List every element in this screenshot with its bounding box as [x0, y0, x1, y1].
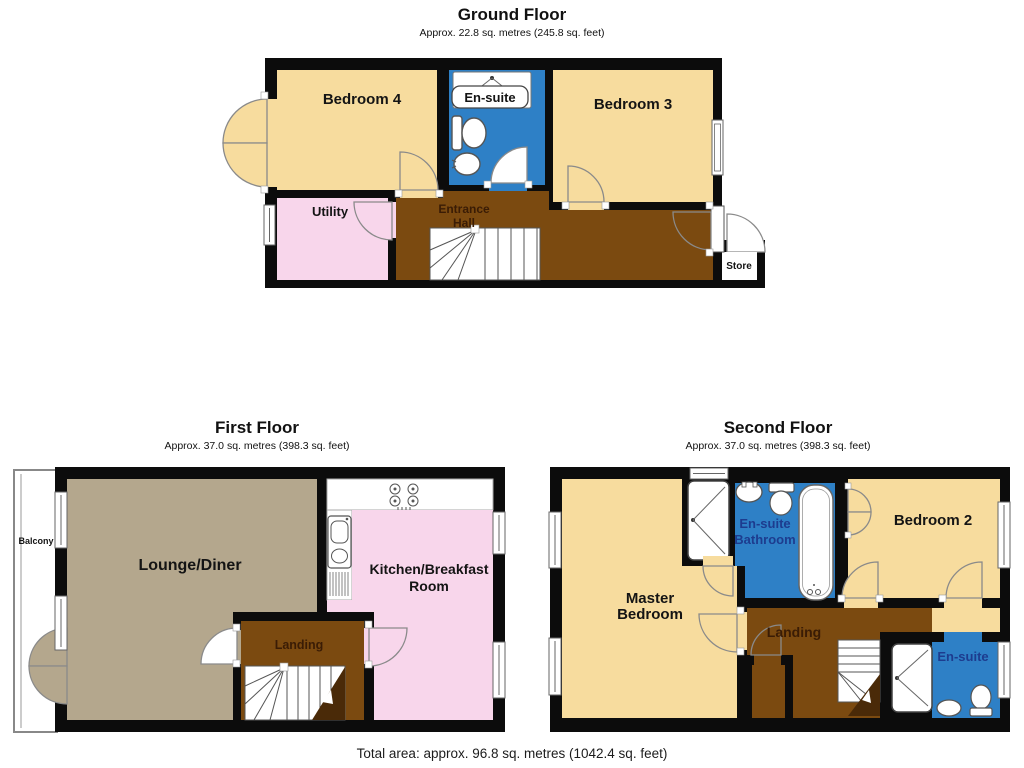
entrance-hall-label-line1: Entrance [438, 202, 490, 216]
kitchen-label-line1: Kitchen/Breakfast [369, 561, 488, 577]
window-bedroom2-right [998, 502, 1010, 568]
jamb [562, 202, 569, 209]
jamb [261, 92, 268, 99]
second-floor-plan: Master Bedroom En-suite Bathroom Bedroom… [549, 467, 1010, 732]
first-floor-plan: Lounge/Diner Kitchen/Breakfast Room Land… [14, 467, 505, 732]
toilet-icon-ground [452, 116, 486, 150]
master-bedroom-label-line1: Master [626, 590, 675, 607]
bedroom4-french-door-arc-top [223, 99, 267, 143]
jamb [706, 202, 713, 209]
jamb [737, 648, 744, 655]
ensuite-bathroom-label-line1: En-suite [739, 516, 790, 531]
drainer-icon [330, 572, 348, 596]
toilet-icon-bathroom [769, 483, 794, 515]
bathtub-icon [799, 485, 833, 600]
bedroom4-label: Bedroom 4 [323, 91, 402, 108]
jamb [395, 190, 402, 197]
toilet-icon-ensuite-second [970, 685, 992, 716]
ground-floor-plan: Bedroom 4 En-suite Bedroom 3 Utility Ent… [223, 58, 765, 288]
kitchen-sink-icon [328, 516, 351, 568]
shower-cubicle-ensuite-icon [892, 644, 932, 712]
sink-icon-ensuite-second [937, 700, 961, 716]
bedroom3-label: Bedroom 3 [594, 96, 672, 113]
window-master-left-top [549, 512, 561, 568]
jamb [838, 595, 845, 602]
balcony-label: Balcony [18, 536, 53, 546]
jamb [484, 181, 491, 188]
window-kitchen-right-top [493, 512, 505, 554]
jamb [737, 607, 744, 614]
kitchen-label-line2: Room [409, 578, 449, 594]
closet-door-gap [754, 655, 781, 665]
floorplan-page: Ground Floor Approx. 22.8 sq. metres (24… [0, 0, 1024, 768]
shower-cubicle-bathroom-icon [688, 481, 729, 560]
jamb [436, 190, 443, 197]
ensuite-ground-label: En-suite [464, 90, 515, 105]
entrance-hall-label-line2: Hall [453, 216, 475, 230]
staircase-ground [430, 225, 540, 280]
utility-label: Utility [312, 204, 349, 219]
bedroom2-label: Bedroom 2 [894, 512, 972, 529]
bedroom3-door-gap [568, 202, 604, 210]
jamb [261, 186, 268, 193]
floorplan-drawing: Bedroom 4 En-suite Bedroom 3 Utility Ent… [0, 0, 1024, 768]
sink-icon-bathroom [736, 482, 762, 502]
store-door-arc [727, 214, 765, 252]
bedroom4-french-door-arc-bottom [223, 143, 267, 187]
jamb [233, 624, 240, 631]
jamb [876, 595, 883, 602]
total-area-text: Total area: approx. 96.8 sq. metres (104… [0, 746, 1024, 761]
master-bedroom-label-line2: Bedroom [617, 606, 683, 623]
front-door-leaf [711, 206, 724, 252]
bedroom4-door-gap [400, 190, 438, 198]
jamb [845, 483, 851, 489]
jamb [602, 202, 609, 209]
store-label: Store [726, 261, 752, 272]
ensuite-route-door-gap [944, 598, 982, 608]
ensuite-second-label: En-suite [937, 649, 988, 664]
jamb [706, 249, 713, 256]
jamb [939, 595, 946, 602]
ensuite-door-gap [489, 183, 527, 191]
window-master-left-bottom [549, 638, 561, 695]
jamb [845, 532, 851, 538]
window-lounge-left-top [55, 492, 67, 548]
window-bathroom-top [690, 468, 728, 479]
jamb [233, 660, 240, 667]
ensuite-bathroom-label-line2: Bathroom [734, 532, 795, 547]
master-bathroom-door-gap [703, 556, 733, 566]
bedroom2-ensuite-passage [932, 608, 1000, 632]
master-landing-door-gap [737, 612, 747, 650]
jamb [365, 621, 372, 628]
landing-second-label: Landing [767, 624, 821, 640]
landing-first-label: Landing [275, 638, 324, 652]
window-kitchen-right-bottom [493, 642, 505, 698]
window-lounge-left-bottom [55, 596, 67, 650]
bedroom2-door-gap [844, 598, 878, 608]
ensuite-second-opening [944, 632, 982, 642]
staircase-first [245, 663, 345, 720]
window-bedroom3-right [712, 120, 723, 175]
lounge-label: Lounge/Diner [138, 557, 241, 574]
jamb [525, 181, 532, 188]
jamb [365, 661, 372, 668]
window-ensuite-right [998, 642, 1010, 698]
window-utility-left [264, 205, 275, 245]
